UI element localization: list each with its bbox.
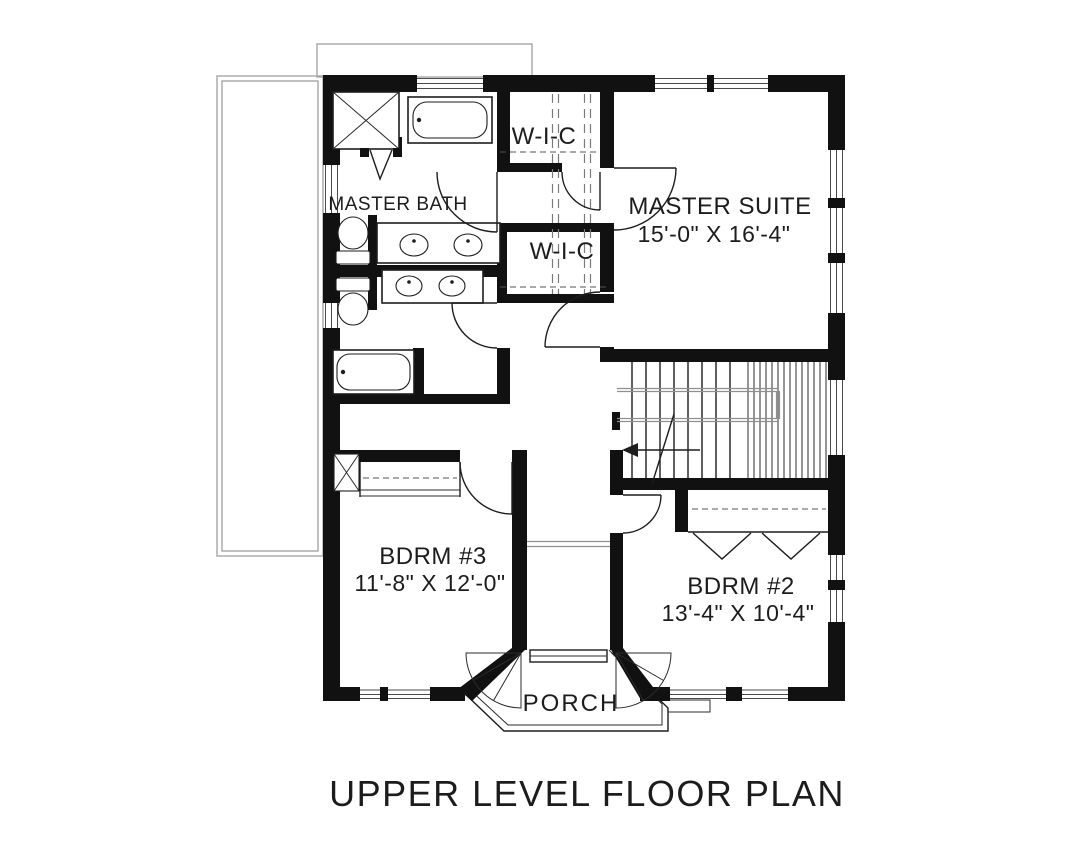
shower-fixture [333,92,402,179]
bdrm3-label: BDRM #3 [379,543,487,570]
master-toilet-fixture [336,217,370,264]
wic-upper-label: W-I-C [512,123,577,150]
master-vanity-fixture [377,223,500,263]
bdrm2-dims: 13'-4" X 10'-4" [662,600,815,626]
bdrm2-label: BDRM #2 [687,573,795,600]
deck-outline [217,76,323,556]
hall-vanity-fixture [382,270,483,303]
roof-bumpout-outline [317,44,532,77]
porch-label: PORCH [523,690,620,717]
floor-plan-page: MASTER BATH W-I-C W-I-C MASTER SUITE 15'… [0,0,1080,865]
hall-toilet-fixture [336,278,370,325]
master-suite-dims: 15'-0" X 16'-4" [638,221,791,247]
floor-plan-drawing: MASTER BATH W-I-C W-I-C MASTER SUITE 15'… [0,0,1080,865]
wic-lower-label: W-I-C [530,238,595,265]
master-bath-label: MASTER BATH [328,194,467,215]
stairs [617,362,826,484]
master-tub-fixture [408,97,492,143]
master-suite-label: MASTER SUITE [628,193,811,220]
bdrm3-dims: 11'-8" X 12'-0" [354,570,505,596]
plan-title: UPPER LEVEL FLOOR PLAN [329,773,845,814]
upper-hall-railing [527,542,610,663]
hall-tub-fixture [333,350,414,394]
stair-direction-arrow [622,443,638,457]
bdrm2-closet [688,509,828,559]
